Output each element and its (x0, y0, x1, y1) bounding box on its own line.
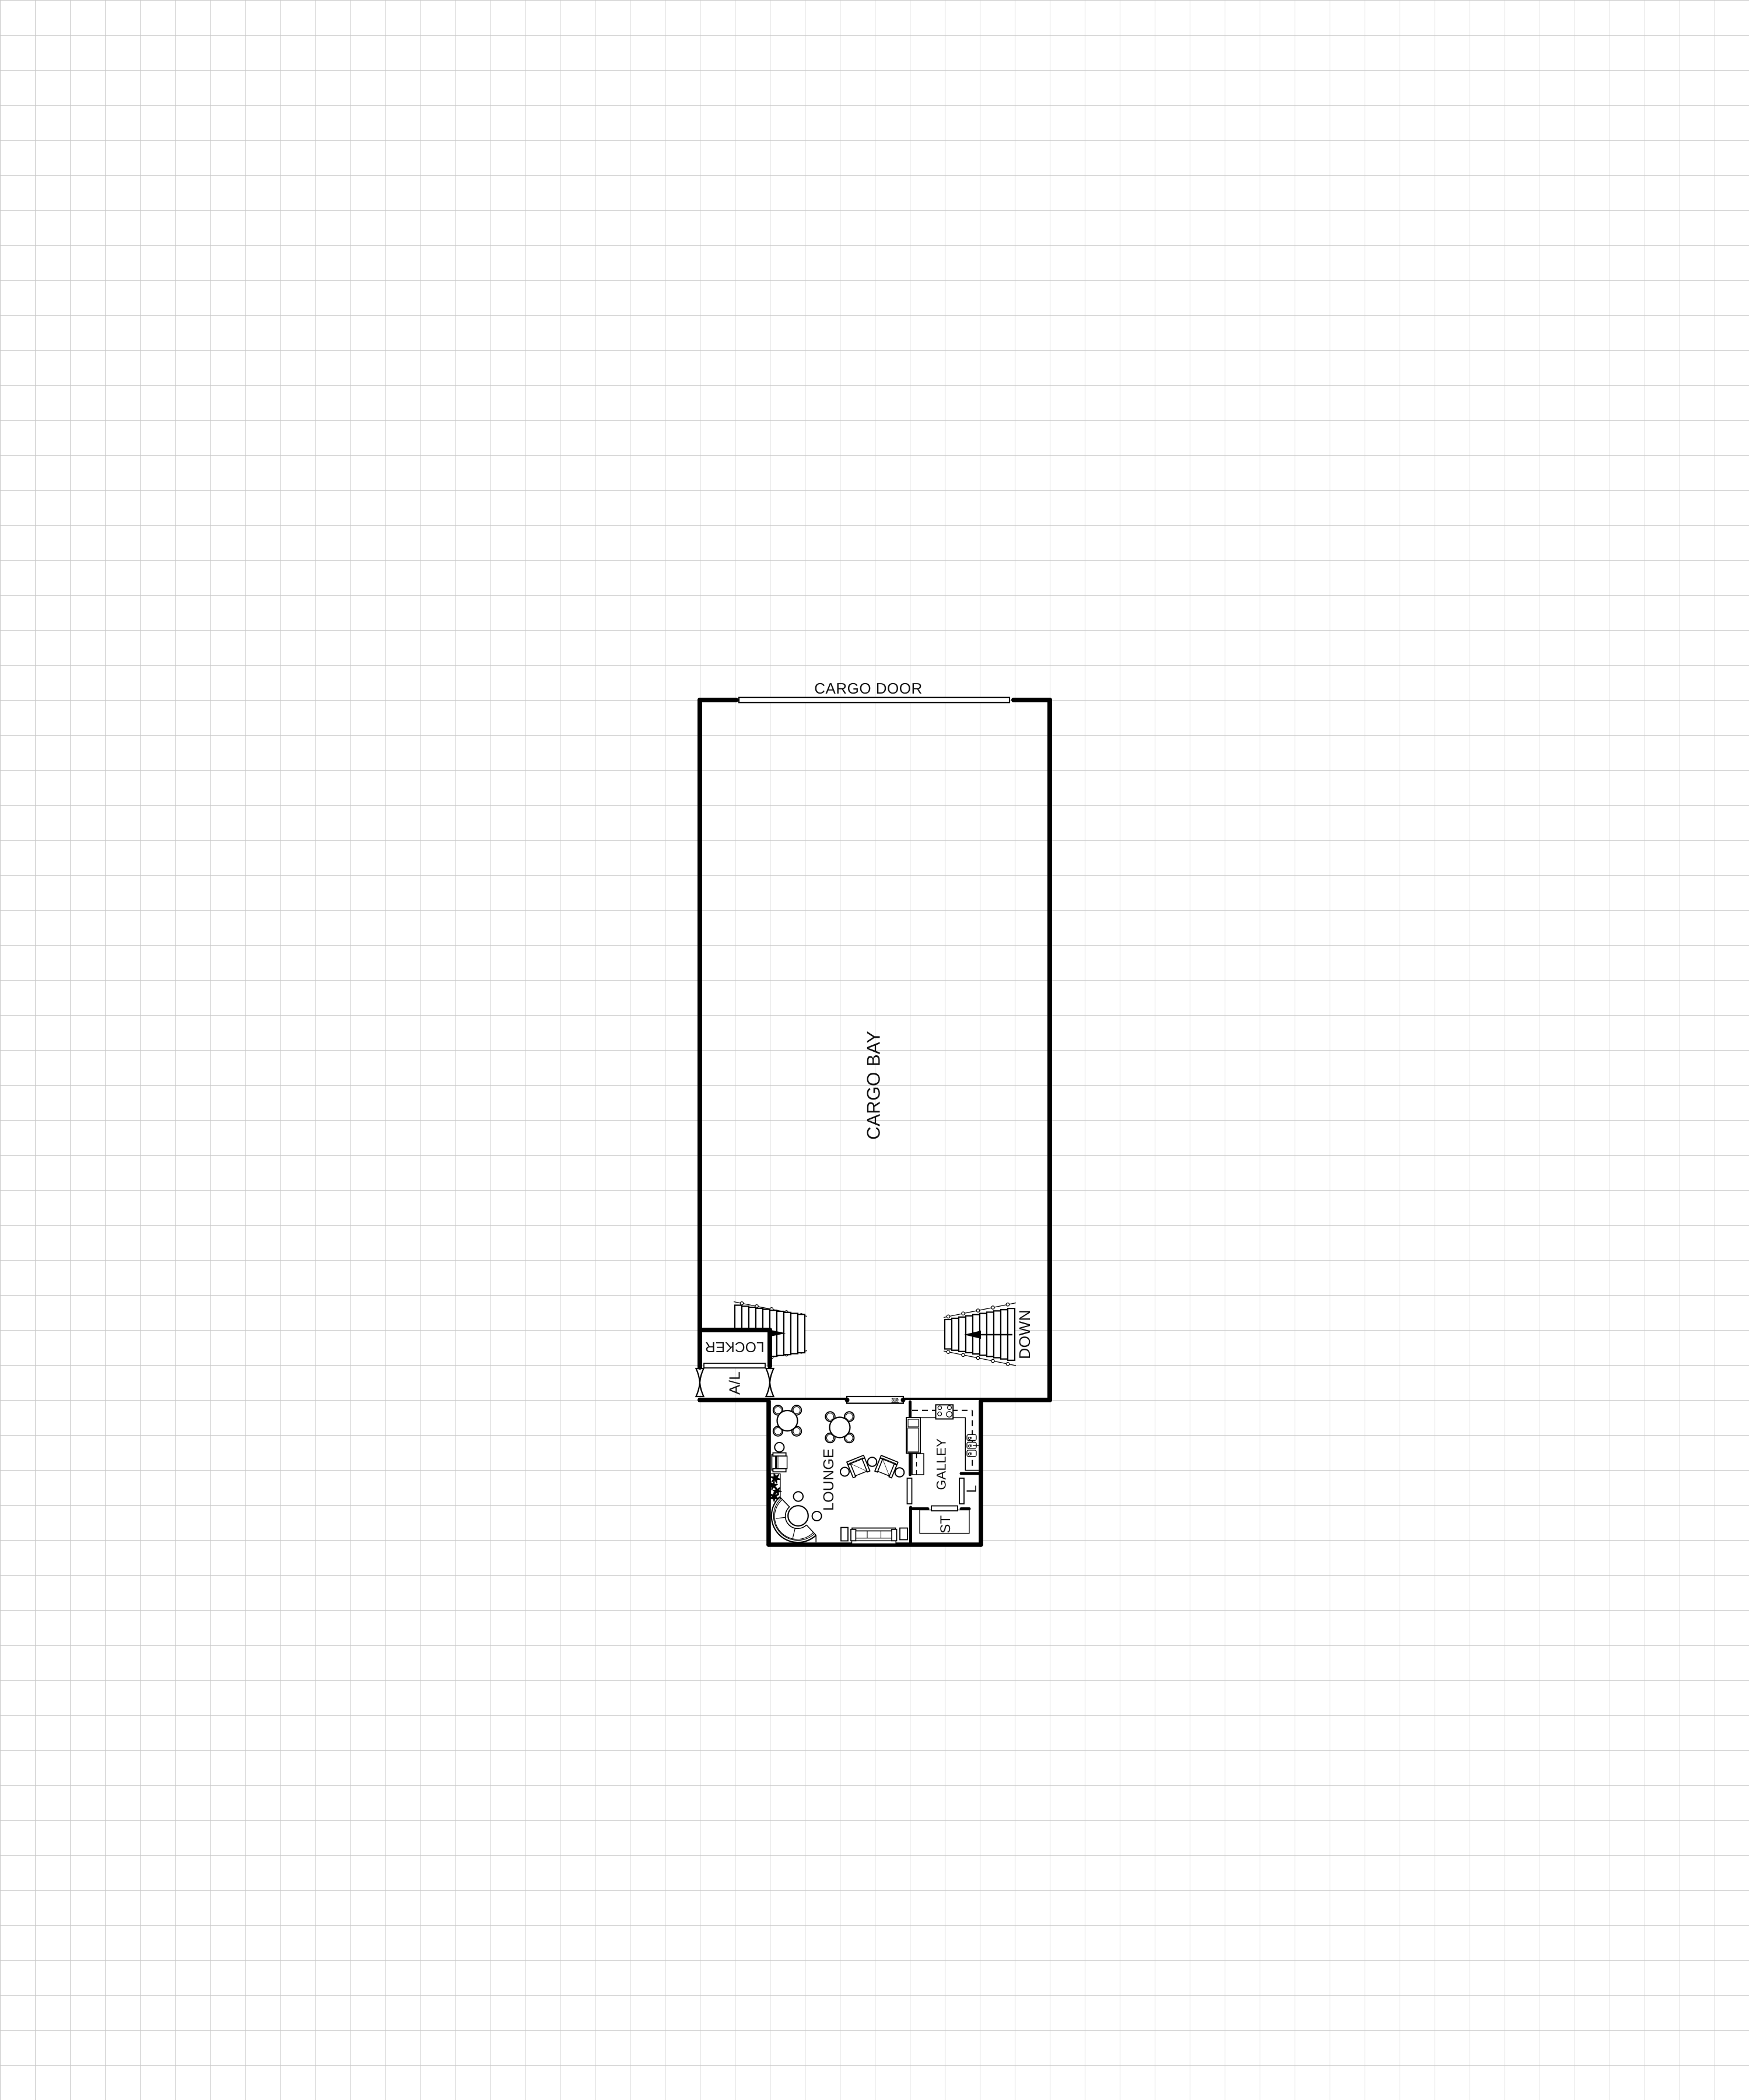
svg-text:A/L: A/L (725, 1371, 743, 1395)
svg-text:LOUNGE: LOUNGE (821, 1448, 837, 1511)
svg-text:L: L (964, 1485, 980, 1493)
svg-text:CARGO BAY: CARGO BAY (863, 1031, 884, 1140)
svg-text:ST: ST (938, 1515, 954, 1533)
svg-text:GALLEY: GALLEY (934, 1438, 948, 1490)
svg-text:LOCKER: LOCKER (705, 1339, 765, 1354)
svg-text:DOWN: DOWN (1016, 1310, 1033, 1359)
svg-text:CARGO DOOR: CARGO DOOR (814, 680, 923, 697)
